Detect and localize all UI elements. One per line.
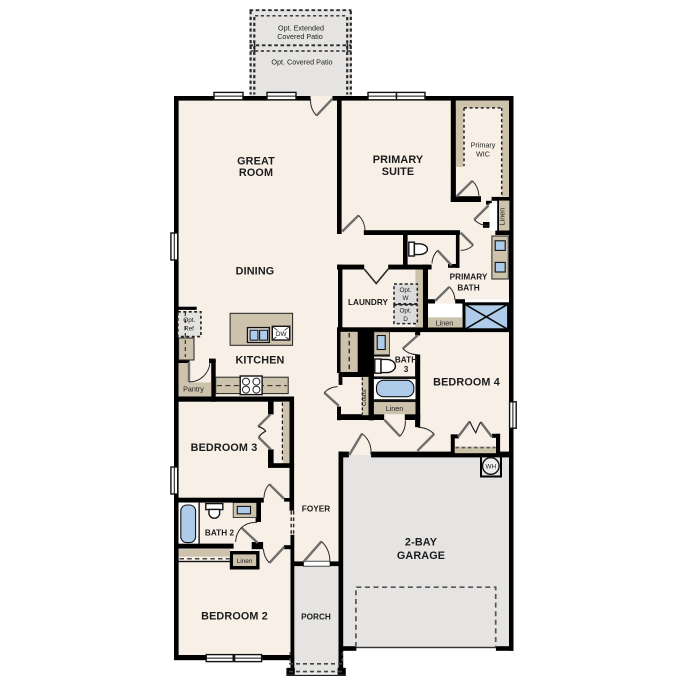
svg-text:W: W: [402, 295, 409, 302]
svg-text:PORCH: PORCH: [301, 613, 331, 622]
svg-text:Linen: Linen: [237, 558, 253, 565]
svg-text:3: 3: [404, 365, 409, 374]
svg-text:BATH: BATH: [457, 284, 479, 293]
svg-text:FOYER: FOYER: [302, 505, 330, 514]
svg-text:BATH 2: BATH 2: [205, 529, 235, 538]
svg-text:PRIMARY: PRIMARY: [450, 273, 488, 282]
svg-text:DINING: DINING: [236, 266, 275, 278]
svg-text:Linen: Linen: [386, 404, 404, 413]
svg-text:D: D: [403, 316, 408, 323]
svg-text:BEDROOM 3: BEDROOM 3: [191, 442, 258, 454]
svg-text:Coats: Coats: [361, 389, 368, 406]
svg-text:DW: DW: [276, 331, 288, 338]
svg-text:SUITE: SUITE: [382, 166, 415, 178]
svg-text:Linen: Linen: [436, 318, 454, 327]
svg-text:2-BAY: 2-BAY: [405, 537, 438, 549]
svg-text:WIC: WIC: [476, 150, 490, 159]
svg-text:PRIMARY: PRIMARY: [373, 154, 424, 166]
svg-text:Pantry: Pantry: [183, 385, 204, 394]
svg-text:Opt.: Opt.: [399, 287, 411, 294]
svg-text:BEDROOM 4: BEDROOM 4: [433, 377, 500, 389]
svg-text:KITCHEN: KITCHEN: [235, 355, 284, 367]
svg-text:GARAGE: GARAGE: [397, 550, 445, 562]
svg-text:LAUNDRY: LAUNDRY: [348, 298, 389, 307]
svg-text:Opt. Covered Patio: Opt. Covered Patio: [271, 58, 332, 67]
svg-text:Opt.: Opt.: [399, 308, 411, 315]
svg-text:Covered Patio: Covered Patio: [277, 32, 323, 41]
svg-text:BEDROOM 2: BEDROOM 2: [201, 611, 268, 623]
svg-text:Linen: Linen: [498, 208, 507, 226]
svg-text:ROOM: ROOM: [239, 167, 273, 179]
svg-text:GREAT: GREAT: [237, 156, 275, 168]
svg-text:BATH: BATH: [395, 356, 417, 365]
svg-text:Primary: Primary: [471, 141, 496, 150]
svg-text:WH: WH: [485, 464, 496, 471]
